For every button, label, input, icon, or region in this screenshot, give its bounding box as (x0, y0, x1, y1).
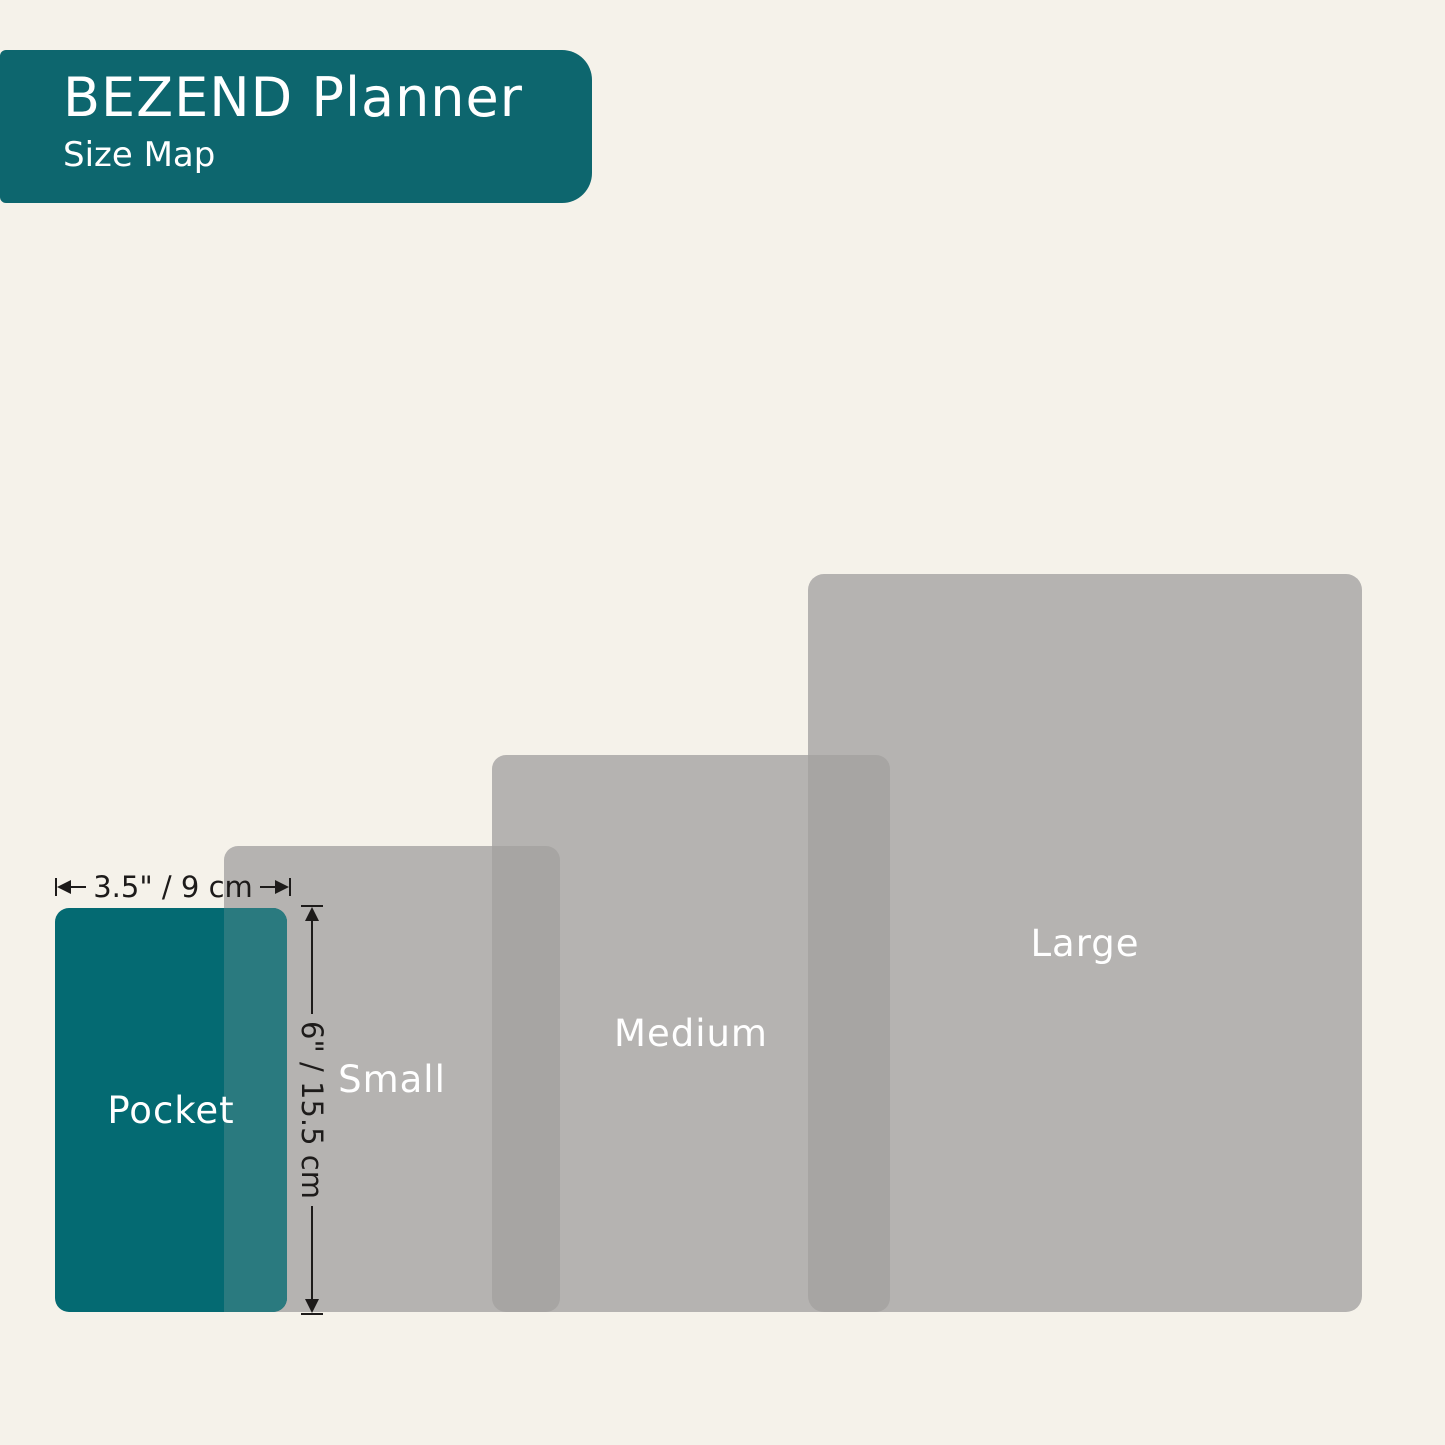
dim-tick-bottom (301, 1313, 323, 1315)
dim-line (311, 1206, 313, 1299)
dim-arrow-left-icon (57, 880, 71, 894)
dim-line (260, 886, 275, 888)
height-dimension-label: 6" / 15.5 cm (295, 1014, 329, 1206)
overlap-large-medium (808, 755, 890, 1312)
size-label-pocket: Pocket (107, 1089, 234, 1132)
size-label-large: Large (1030, 922, 1139, 965)
title-banner: BEZEND Planner Size Map (0, 50, 592, 203)
width-dimension-label: 3.5" / 9 cm (86, 870, 260, 904)
size-label-small: Small (338, 1058, 446, 1101)
size-label-medium: Medium (614, 1012, 768, 1055)
dim-line (71, 886, 86, 888)
dim-arrow-right-icon (275, 880, 289, 894)
dim-tick-right (289, 878, 291, 896)
dim-line (311, 921, 313, 1014)
dim-arrow-up-icon (305, 907, 319, 921)
width-dimension: 3.5" / 9 cm (55, 869, 291, 905)
page-subtitle: Size Map (63, 135, 592, 175)
size-map-canvas: BEZEND Planner Size Map Large Medium Sma… (0, 0, 1445, 1445)
overlap-medium-small (492, 846, 560, 1312)
page-title: BEZEND Planner (63, 68, 592, 127)
height-dimension: 6" / 15.5 cm (296, 905, 328, 1315)
size-rect-large: Large (808, 574, 1362, 1312)
dim-arrow-down-icon (305, 1299, 319, 1313)
